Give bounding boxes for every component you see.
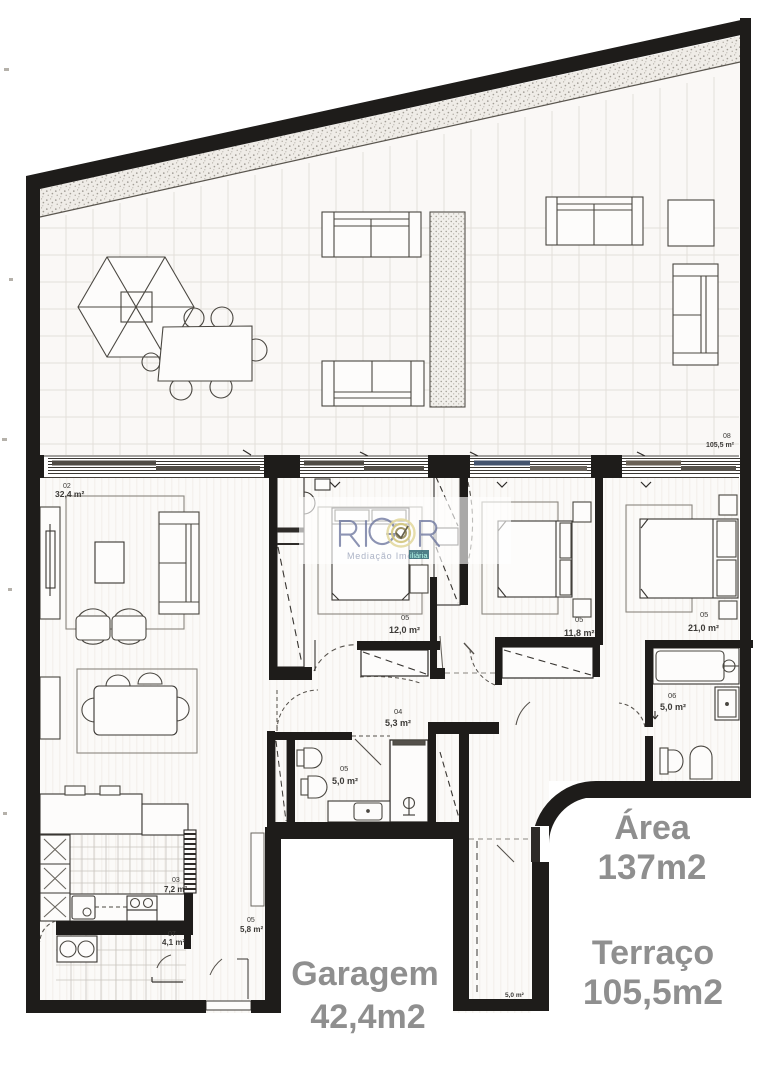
svg-text:5,0 m²: 5,0 m²	[332, 776, 358, 786]
svg-text:04: 04	[394, 707, 402, 716]
svg-text:iliária: iliária	[410, 551, 428, 560]
svg-text:7,2 m²: 7,2 m²	[164, 885, 187, 894]
svg-text:Terraço: Terraço	[592, 934, 714, 972]
svg-text:105,5m2: 105,5m2	[583, 972, 723, 1012]
svg-text:32,4 m²: 32,4 m²	[55, 489, 84, 499]
svg-text:Garagem: Garagem	[291, 955, 438, 993]
svg-text:137m2: 137m2	[598, 848, 707, 887]
svg-text:5,3 m²: 5,3 m²	[385, 718, 411, 728]
svg-text:5,0 m²: 5,0 m²	[505, 992, 525, 999]
svg-text:05: 05	[340, 764, 348, 773]
svg-text:Mediação Imob: Mediação Imob	[347, 551, 419, 561]
svg-text:05: 05	[575, 615, 583, 624]
svg-text:08: 08	[723, 433, 731, 440]
svg-text:05: 05	[700, 610, 708, 619]
svg-text:105,5 m²: 105,5 m²	[706, 442, 735, 449]
svg-text:21,0 m²: 21,0 m²	[688, 623, 719, 633]
svg-text:Área: Área	[614, 809, 691, 847]
svg-text:07: 07	[168, 931, 176, 938]
svg-text:12,0 m²: 12,0 m²	[389, 625, 420, 635]
svg-text:06: 06	[668, 691, 676, 700]
svg-text:05: 05	[401, 613, 409, 622]
svg-text:5,8 m²: 5,8 m²	[240, 925, 263, 934]
svg-text:05: 05	[247, 917, 255, 924]
svg-text:03: 03	[172, 877, 180, 884]
svg-text:42,4m2: 42,4m2	[310, 998, 425, 1036]
svg-text:5,0 m²: 5,0 m²	[660, 702, 686, 712]
svg-text:4,1 m²: 4,1 m²	[162, 938, 185, 947]
svg-text:11,8 m²: 11,8 m²	[564, 628, 595, 638]
